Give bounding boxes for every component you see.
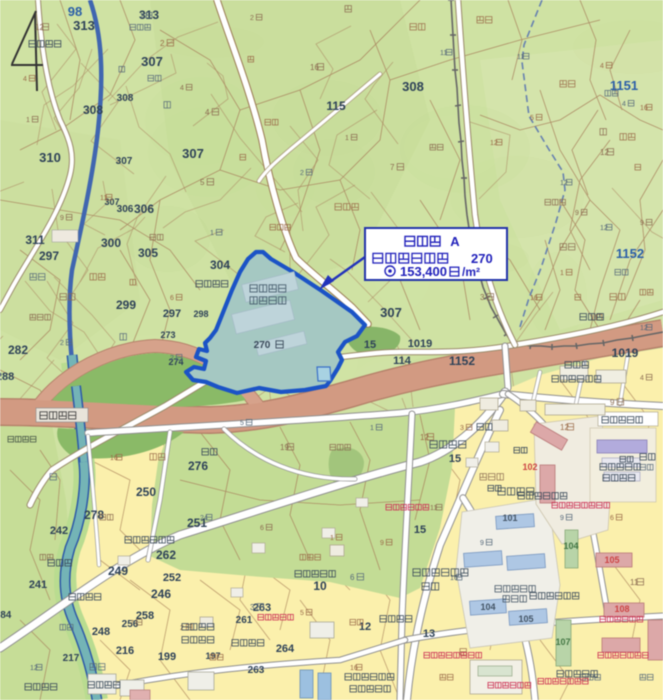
svg-text:304: 304 [210,258,230,272]
svg-text:9: 9 [560,515,564,522]
svg-text:115: 115 [326,99,346,113]
svg-text:9: 9 [640,220,644,227]
svg-text:1: 1 [26,117,30,124]
svg-text:264: 264 [276,643,295,655]
svg-text:1: 1 [370,425,374,432]
svg-text:6: 6 [350,573,355,582]
svg-text:12: 12 [560,423,569,432]
svg-text:105: 105 [604,555,619,565]
svg-text:217: 217 [63,653,80,664]
svg-text:307: 307 [182,146,204,161]
svg-text:4: 4 [23,76,27,83]
svg-text:1: 1 [330,535,334,542]
svg-text:307: 307 [141,54,163,69]
svg-text:241: 241 [29,579,47,591]
svg-text:3: 3 [250,603,255,612]
svg-text:16: 16 [350,665,358,672]
svg-text:308: 308 [402,79,424,94]
svg-text:250: 250 [136,485,156,499]
svg-text:5: 5 [530,115,534,122]
svg-text:4: 4 [600,63,604,70]
svg-text:12: 12 [560,180,568,187]
svg-text:284: 284 [0,610,12,621]
svg-text:1019: 1019 [408,338,432,350]
svg-text:282: 282 [8,343,28,357]
svg-text:2: 2 [300,170,304,177]
svg-text:A: A [450,234,460,249]
svg-text:114: 114 [393,355,412,367]
svg-text:105: 105 [518,614,533,624]
svg-text:263: 263 [248,665,265,676]
svg-text:3: 3 [460,425,464,432]
svg-text:308: 308 [83,103,103,117]
svg-text:242: 242 [50,525,68,537]
svg-text:307: 307 [380,305,402,320]
svg-text:1152: 1152 [449,354,475,368]
svg-text:252: 252 [163,572,181,584]
svg-text:12: 12 [140,13,148,20]
svg-text:1: 1 [560,270,564,277]
svg-text:102: 102 [522,462,537,472]
svg-text:5: 5 [200,178,205,187]
svg-text:12: 12 [600,225,608,232]
svg-text:16: 16 [110,455,118,462]
svg-text:246: 246 [151,587,171,601]
svg-text:16: 16 [530,295,538,302]
svg-text:199: 199 [158,651,176,663]
svg-text:6: 6 [170,295,174,302]
svg-text:104: 104 [480,602,495,612]
svg-text:2: 2 [160,39,165,48]
svg-text:310: 310 [39,150,61,165]
svg-text:273: 273 [160,330,175,340]
svg-text:16: 16 [310,63,319,72]
svg-text:307: 307 [116,156,133,167]
svg-text:15: 15 [364,339,376,351]
svg-text:15: 15 [414,524,426,536]
svg-text:12: 12 [640,325,648,332]
svg-text:216: 216 [116,645,134,657]
svg-text:4: 4 [180,85,184,92]
svg-text:12: 12 [420,433,429,442]
svg-text:1: 1 [210,230,214,237]
svg-text:9: 9 [575,210,579,217]
svg-text:7: 7 [130,620,134,627]
svg-text:248: 248 [92,626,110,638]
svg-text:300: 300 [101,236,121,250]
svg-text:24: 24 [200,515,208,522]
svg-text:298: 298 [193,309,208,319]
svg-text:153,400: 153,400 [400,264,447,279]
svg-text:2: 2 [170,355,174,362]
svg-text:258: 258 [136,610,154,622]
svg-text:4: 4 [622,101,626,108]
svg-text:104: 104 [563,541,578,551]
svg-text:4: 4 [205,108,210,117]
svg-text:262: 262 [156,548,176,562]
svg-text:10: 10 [313,579,327,593]
svg-text:13: 13 [423,628,435,640]
svg-text:3: 3 [480,293,485,302]
svg-text:306: 306 [134,202,154,216]
svg-text:2: 2 [60,340,64,347]
svg-text:9: 9 [610,398,615,407]
svg-text:108: 108 [614,604,629,614]
svg-text:15: 15 [449,453,461,465]
svg-text:101: 101 [502,513,517,523]
svg-text:107: 107 [555,637,570,647]
svg-text:9: 9 [380,540,384,547]
svg-text:4: 4 [640,375,644,382]
svg-text:288: 288 [0,371,14,383]
svg-text:1: 1 [345,135,349,142]
svg-text:12: 12 [359,621,371,633]
svg-text:311: 311 [25,233,45,247]
svg-text:9: 9 [480,540,484,547]
svg-text:305: 305 [138,246,158,260]
svg-text:297: 297 [163,308,181,320]
svg-text:270: 270 [471,251,493,266]
svg-text:299: 299 [116,298,136,312]
svg-text:1152: 1152 [616,246,644,261]
svg-text:2: 2 [250,15,254,22]
svg-text:19: 19 [280,443,289,452]
svg-text:16: 16 [640,105,648,112]
svg-text:12: 12 [35,23,44,32]
svg-text:313: 313 [73,18,95,33]
svg-text:308: 308 [117,93,134,104]
svg-text:12: 12 [30,665,38,672]
svg-text:12: 12 [490,140,498,147]
svg-text:6: 6 [610,515,614,522]
svg-text:306: 306 [117,204,134,215]
svg-text:6: 6 [260,525,264,532]
svg-text:197: 197 [205,651,220,661]
svg-text:1019: 1019 [612,346,639,360]
svg-text:270: 270 [254,340,271,351]
svg-text:9: 9 [60,215,64,222]
svg-text:249: 249 [108,564,128,578]
svg-text:5: 5 [300,610,304,617]
svg-text:261: 261 [236,615,253,626]
svg-text:276: 276 [188,459,208,473]
svg-text:98: 98 [68,4,82,19]
svg-text:7: 7 [390,163,395,172]
svg-text:/m²: /m² [462,265,480,279]
svg-text:297: 297 [39,249,59,263]
svg-text:5: 5 [240,420,244,427]
svg-text:12: 12 [600,148,609,157]
